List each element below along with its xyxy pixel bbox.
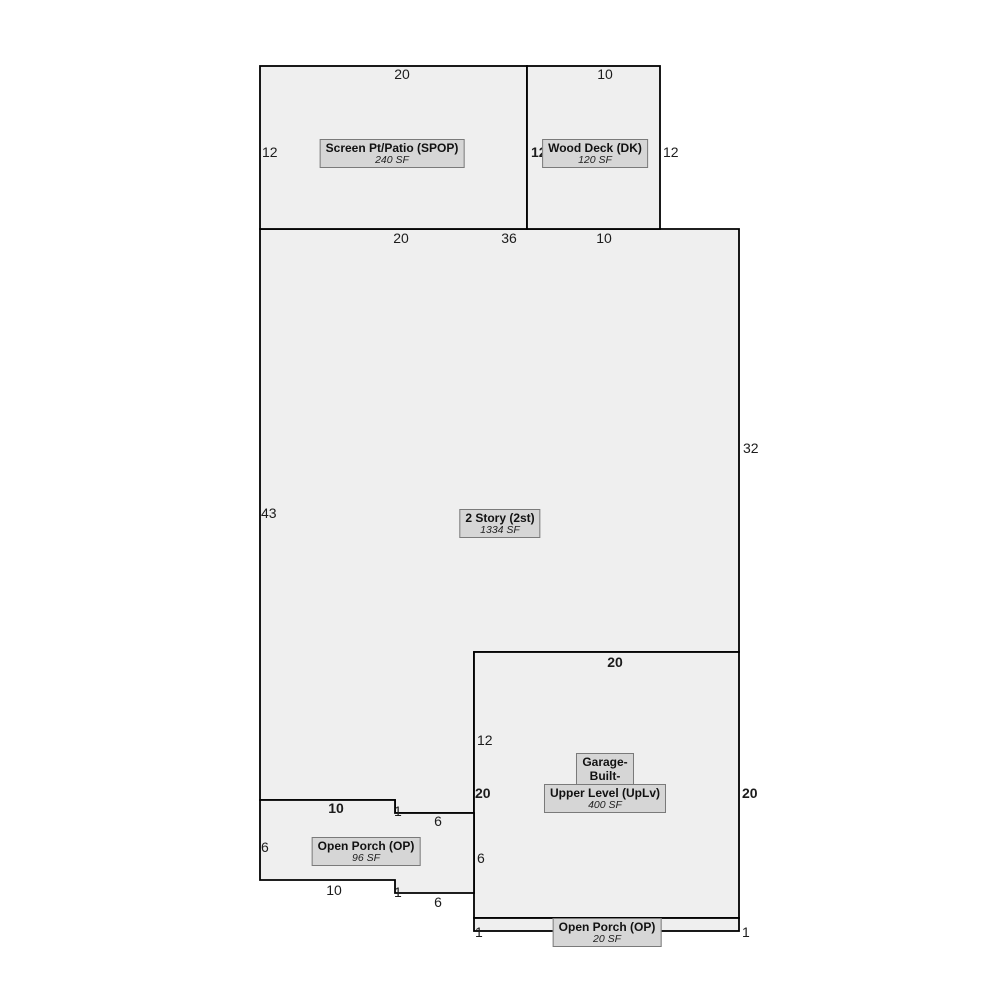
dim-garage-left-lower: 6 [477, 851, 485, 865]
open-porch-96-label: Open Porch (OP) 96 SF [312, 837, 421, 866]
two-story-title: 2 Story (2st) [465, 511, 534, 525]
garage-label: Garage- Built- Upper Level (UpLv) 400 SF [544, 753, 666, 813]
dim-op20-right: 1 [742, 925, 750, 939]
dim-garage-left: 20 [475, 786, 491, 800]
open-porch-96-title: Open Porch (OP) [318, 839, 415, 853]
garage-title-line3: Upper Level (UpLv) [550, 786, 660, 800]
dim-op96-bottom-step: 1 [394, 885, 402, 899]
dim-op96-top-step: 1 [394, 804, 402, 818]
two-story-label: 2 Story (2st) 1334 SF [459, 509, 540, 538]
dim-op96-top: 10 [328, 801, 344, 815]
dim-garage-right: 20 [742, 786, 758, 800]
dim-op96-top-right: 6 [434, 814, 442, 828]
open-porch-20-area: 20 SF [559, 934, 656, 945]
wood-deck-title: Wood Deck (DK) [548, 141, 642, 155]
sketch-page: 20 10 12 12 12 20 36 10 43 32 20 12 20 6… [0, 0, 1000, 1000]
dim-op20-left: 1 [475, 925, 483, 939]
dim-op96-bottom: 10 [326, 883, 342, 897]
wood-deck-area: 120 SF [548, 155, 642, 166]
dim-story2-left: 43 [261, 506, 277, 520]
garage-area: 400 SF [550, 800, 660, 811]
two-story-area: 1334 SF [465, 525, 534, 536]
floorplan-canvas [0, 0, 1000, 1000]
dim-spop-left: 12 [262, 145, 278, 159]
dim-dk-bottom: 10 [596, 231, 612, 245]
screen-patio-title: Screen Pt/Patio (SPOP) [326, 141, 459, 155]
dim-spop-bottom: 20 [393, 231, 409, 245]
wood-deck-label: Wood Deck (DK) 120 SF [542, 139, 648, 168]
garage-title-line1: Garage- [582, 755, 627, 769]
dim-garage-top: 20 [607, 655, 623, 669]
open-porch-20-title: Open Porch (OP) [559, 920, 656, 934]
screen-patio-area: 240 SF [326, 155, 459, 166]
dim-op96-bottom-right: 6 [434, 895, 442, 909]
dim-dk-top: 10 [597, 67, 613, 81]
dim-story2-top: 36 [501, 231, 517, 245]
garage-title-line2: Built- [582, 769, 627, 783]
open-porch-96-area: 96 SF [318, 853, 415, 864]
dim-dk-right: 12 [663, 145, 679, 159]
dim-story2-right: 32 [743, 441, 759, 455]
dim-spop-top: 20 [394, 67, 410, 81]
dim-garage-left-upper: 12 [477, 733, 493, 747]
open-porch-20-label: Open Porch (OP) 20 SF [553, 918, 662, 947]
screen-patio-label: Screen Pt/Patio (SPOP) 240 SF [320, 139, 465, 168]
dim-op96-left: 6 [261, 840, 269, 854]
